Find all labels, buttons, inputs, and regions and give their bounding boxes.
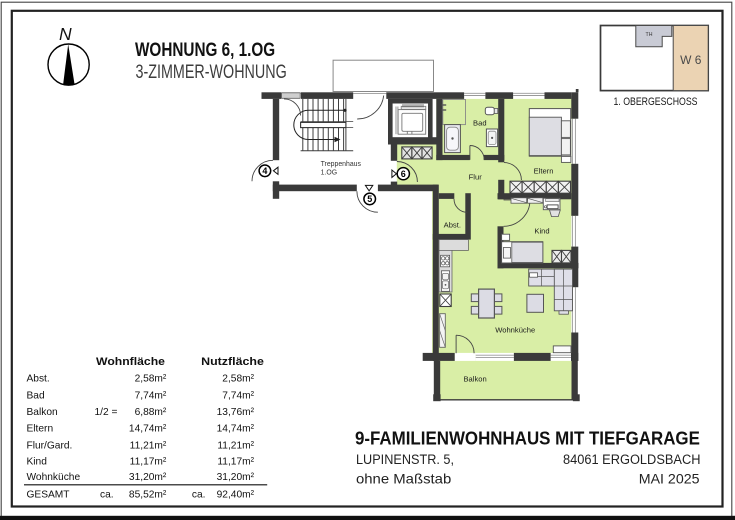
svg-text:5: 5 — [367, 194, 372, 204]
svg-text:92,40m²: 92,40m² — [217, 490, 255, 501]
svg-text:Flur/Gard.: Flur/Gard. — [27, 441, 73, 452]
svg-text:6: 6 — [401, 169, 406, 179]
svg-text:14,74m²: 14,74m² — [217, 423, 255, 434]
svg-text:Wohnfläche: Wohnfläche — [96, 357, 166, 368]
svg-text:Balkon: Balkon — [27, 407, 58, 418]
svg-text:84061 ERGOLDSBACH: 84061 ERGOLDSBACH — [563, 451, 701, 467]
svg-text:W 6: W 6 — [680, 53, 702, 67]
svg-text:2,58m²: 2,58m² — [135, 374, 167, 385]
svg-text:1/2 =: 1/2 = — [95, 407, 118, 418]
svg-text:MAI 2025: MAI 2025 — [639, 472, 700, 488]
svg-text:11,17m²: 11,17m² — [130, 456, 167, 467]
svg-text:85,52m²: 85,52m² — [129, 490, 167, 501]
svg-text:Balkon: Balkon — [463, 374, 486, 383]
svg-text:11,21m²: 11,21m² — [130, 441, 167, 452]
svg-text:Nutzfläche: Nutzfläche — [201, 356, 264, 368]
svg-text:4: 4 — [262, 166, 267, 176]
svg-text:13,76m²: 13,76m² — [217, 407, 255, 418]
svg-text:Eltern: Eltern — [534, 167, 554, 176]
svg-text:ohne Maßstab: ohne Maßstab — [356, 472, 451, 488]
svg-text:TH: TH — [646, 32, 653, 38]
svg-text:LUPINENSTR. 5,: LUPINENSTR. 5, — [356, 451, 454, 467]
svg-text:7,74m²: 7,74m² — [135, 390, 167, 401]
svg-text:6,88m²: 6,88m² — [135, 407, 167, 418]
svg-text:Abst.: Abst. — [27, 374, 50, 385]
svg-text:Treppenhaus: Treppenhaus — [321, 161, 362, 168]
svg-text:Bad: Bad — [473, 118, 487, 127]
svg-text:Bad: Bad — [27, 390, 45, 401]
svg-text:9-FAMILIENWOHNHAUS MIT TIEFGAR: 9-FAMILIENWOHNHAUS MIT TIEFGARAGE — [355, 428, 700, 449]
svg-text:11,17m²: 11,17m² — [217, 456, 254, 467]
svg-text:1. OBERGESCHOSS: 1. OBERGESCHOSS — [614, 96, 698, 108]
svg-text:14,74m²: 14,74m² — [129, 423, 167, 434]
svg-text:1.OG: 1.OG — [321, 170, 337, 177]
svg-text:Wohnküche: Wohnküche — [495, 326, 535, 335]
svg-text:Abst.: Abst. — [444, 221, 461, 230]
svg-text:N: N — [59, 24, 72, 44]
svg-text:31,20m²: 31,20m² — [129, 472, 167, 483]
svg-text:ca.: ca. — [192, 490, 206, 501]
svg-text:Flur: Flur — [469, 172, 483, 181]
svg-text:Kind: Kind — [534, 226, 549, 235]
svg-text:3-ZIMMER-WOHNUNG: 3-ZIMMER-WOHNUNG — [136, 61, 287, 83]
svg-text:GESAMT: GESAMT — [27, 490, 70, 501]
svg-text:Eltern: Eltern — [27, 423, 54, 434]
svg-text:31,20m²: 31,20m² — [217, 472, 255, 483]
svg-text:11,21m²: 11,21m² — [217, 441, 254, 452]
svg-text:ca.: ca. — [100, 490, 114, 501]
svg-text:2,58m²: 2,58m² — [222, 374, 254, 385]
svg-text:WOHNUNG 6, 1.OG: WOHNUNG 6, 1.OG — [135, 38, 275, 60]
svg-text:Wohnküche: Wohnküche — [27, 472, 81, 483]
svg-text:Kind: Kind — [27, 456, 48, 467]
svg-text:7,74m²: 7,74m² — [222, 390, 254, 401]
